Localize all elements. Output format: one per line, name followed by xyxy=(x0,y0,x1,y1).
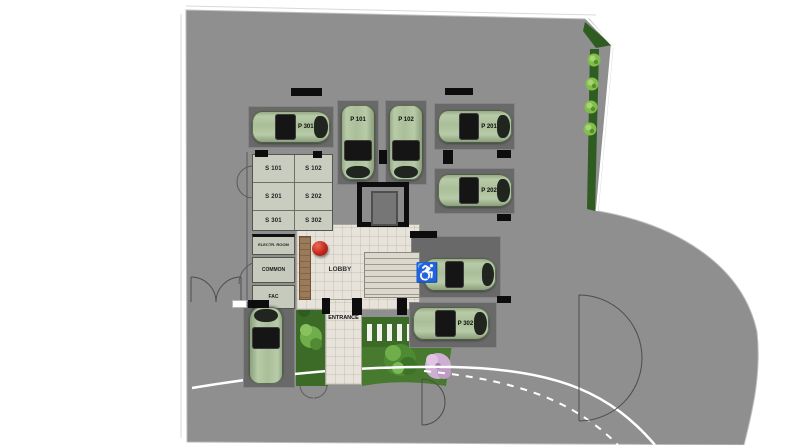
storage-room-label: S 202 xyxy=(305,194,322,200)
parking-spot-label: P 302 xyxy=(456,321,474,327)
storage-room: S 201 xyxy=(253,183,294,210)
entrance-label: ENTRANCE xyxy=(325,315,362,321)
storage-room-label: S 201 xyxy=(265,194,282,200)
car-windshield xyxy=(394,166,418,178)
storage-room: S 102 xyxy=(295,155,332,182)
common-room-label: COMMON xyxy=(261,266,286,274)
car-roof xyxy=(459,177,479,204)
car-roof xyxy=(459,113,479,140)
car-p102: P 102 xyxy=(389,105,423,180)
car-p101: P 101 xyxy=(341,105,375,180)
storage-room: S 101 xyxy=(253,155,294,182)
electrical-room: ELECTR. ROOM xyxy=(252,234,295,255)
storage-room-label: S 301 xyxy=(265,218,282,224)
wall-segment xyxy=(497,296,511,303)
tree-icon xyxy=(588,54,601,67)
wall-segment xyxy=(248,300,269,308)
storage-room: S 302 xyxy=(295,211,332,230)
gate-post xyxy=(232,300,247,308)
red-seat xyxy=(312,241,328,256)
car-p201: P 201 xyxy=(438,110,512,143)
wall-segment xyxy=(497,214,511,221)
tree-icon xyxy=(586,78,599,91)
wall-segment xyxy=(255,150,268,157)
car-roof xyxy=(344,140,372,161)
parking-spot-label: P 101 xyxy=(341,117,375,123)
car-p202: P 202 xyxy=(438,174,512,207)
lobby-label: LOBBY xyxy=(320,266,360,273)
parking-spot-label: P 201 xyxy=(480,124,498,130)
storage-room: S 301 xyxy=(253,211,294,230)
wall-segment xyxy=(313,151,322,158)
car-windshield xyxy=(497,179,510,202)
car-windshield xyxy=(346,166,370,178)
wheelchair-icon: ♿ xyxy=(414,260,440,288)
wall-segment xyxy=(379,150,387,164)
wall-segment xyxy=(497,150,511,158)
storage-room-label: S 102 xyxy=(305,166,322,172)
parking-spot-label: P 202 xyxy=(480,188,498,194)
wood-bench xyxy=(299,236,311,300)
tree-icon xyxy=(585,101,598,114)
car-windshield xyxy=(474,312,487,335)
car-p302: P 302 xyxy=(413,307,489,340)
elevator-shaft xyxy=(357,182,409,227)
tree-icon xyxy=(584,123,597,136)
common-room: COMMON xyxy=(252,257,295,283)
storage-room-label: S 302 xyxy=(305,218,322,224)
car-windshield xyxy=(254,309,278,321)
car-windshield xyxy=(497,115,510,138)
storage-room-block: S 101 S 102 S 201 S 202 S 301 S 302 xyxy=(252,154,333,231)
wall-segment xyxy=(322,298,330,314)
wall-segment xyxy=(352,298,362,315)
car-roof xyxy=(435,310,456,337)
car-roof xyxy=(252,327,280,349)
wall-segment xyxy=(443,150,453,164)
wall-segment xyxy=(397,298,407,315)
car-p301: P 301 xyxy=(252,111,330,143)
elevator-cab xyxy=(371,191,398,226)
car-roof xyxy=(445,261,464,288)
wall-segment xyxy=(291,88,322,96)
car-windshield xyxy=(482,263,494,286)
wall-segment xyxy=(410,231,437,238)
car-roof xyxy=(392,140,420,161)
floor-plan: LOBBY ENTRANCE S 101 S 102 S 201 S 202 S… xyxy=(0,0,790,445)
wall-segment xyxy=(445,88,473,95)
parking-spot-label: P 301 xyxy=(296,124,315,130)
storage-room-label: S 101 xyxy=(265,166,282,172)
car-roof xyxy=(275,114,296,140)
stairs xyxy=(364,252,420,298)
fac-room-label: FAC xyxy=(268,293,280,301)
storage-room: S 202 xyxy=(295,183,332,210)
parking-spot-label: P 102 xyxy=(389,117,423,123)
car-visitor-spot xyxy=(249,307,283,384)
car-windshield xyxy=(314,116,327,138)
electrical-room-label: ELECTR. ROOM xyxy=(257,242,290,249)
